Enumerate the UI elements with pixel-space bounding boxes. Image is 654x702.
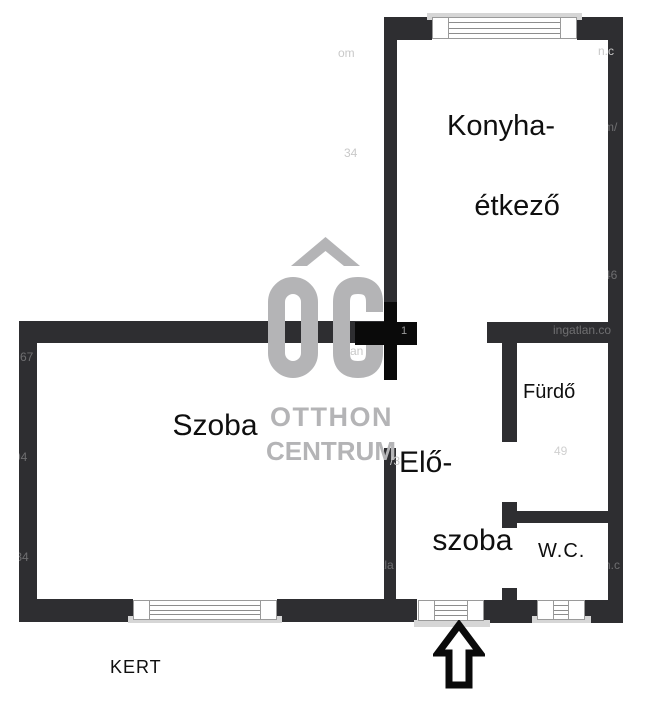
watermark-fragment: 49: [554, 444, 567, 458]
floorplan-canvas: OTTHON CENTRUM Konyha- étkező Szoba Elő-…: [0, 0, 654, 702]
wall-room-left: [19, 321, 37, 622]
watermark-brand-line1: OTTHON: [270, 402, 390, 433]
watermark-brand-line2: CENTRUM: [266, 436, 394, 467]
watermark-fragment: 34: [344, 146, 357, 160]
room-label-hallway: Elő- szoba: [399, 443, 512, 560]
door-glazing: [435, 605, 467, 616]
window-kitchen-top: [432, 17, 577, 39]
wall-room-top: [19, 321, 384, 343]
wall-room-bottom-right: [277, 599, 417, 622]
wall-kitchen-bath-divider: [487, 322, 608, 343]
window-glazing: [554, 605, 568, 615]
wall-right-outer: [608, 17, 623, 623]
wall-bottom-entry-right: [484, 600, 537, 623]
window-glazing: [150, 605, 260, 615]
wall-hall-left-lower: [384, 448, 396, 600]
window-wc-bottom: [537, 600, 585, 620]
wall-pillar-horizontal: [355, 322, 417, 345]
outside-label-garden: KERT: [110, 657, 162, 678]
wall-bath-wc-divider: [515, 511, 608, 523]
room-label-bathroom: Fürdő: [523, 381, 575, 404]
wall-kitchen-left: [384, 17, 397, 322]
window-glazing: [449, 22, 560, 34]
wall-bath-left: [502, 343, 517, 442]
room-label-line: Konyha-: [447, 110, 555, 142]
room-label-wc: W.C.: [538, 540, 585, 563]
room-label-line: étkező: [474, 190, 559, 222]
window-room-bottom: [133, 600, 277, 620]
room-label-line: szoba: [432, 524, 512, 557]
wall-room-bottom-left: [19, 599, 133, 622]
room-label-room: Szoba: [150, 409, 280, 443]
room-label-line: Elő-: [399, 446, 452, 479]
room-label-kitchen-dining: Konyha- étkező: [420, 106, 582, 226]
watermark-fragment: om: [338, 46, 355, 60]
entrance-arrow-icon: [433, 620, 485, 692]
watermark-fragment: an: [350, 344, 363, 358]
wall-kitchen-top-left: [384, 17, 432, 40]
entry-door: [418, 600, 484, 621]
